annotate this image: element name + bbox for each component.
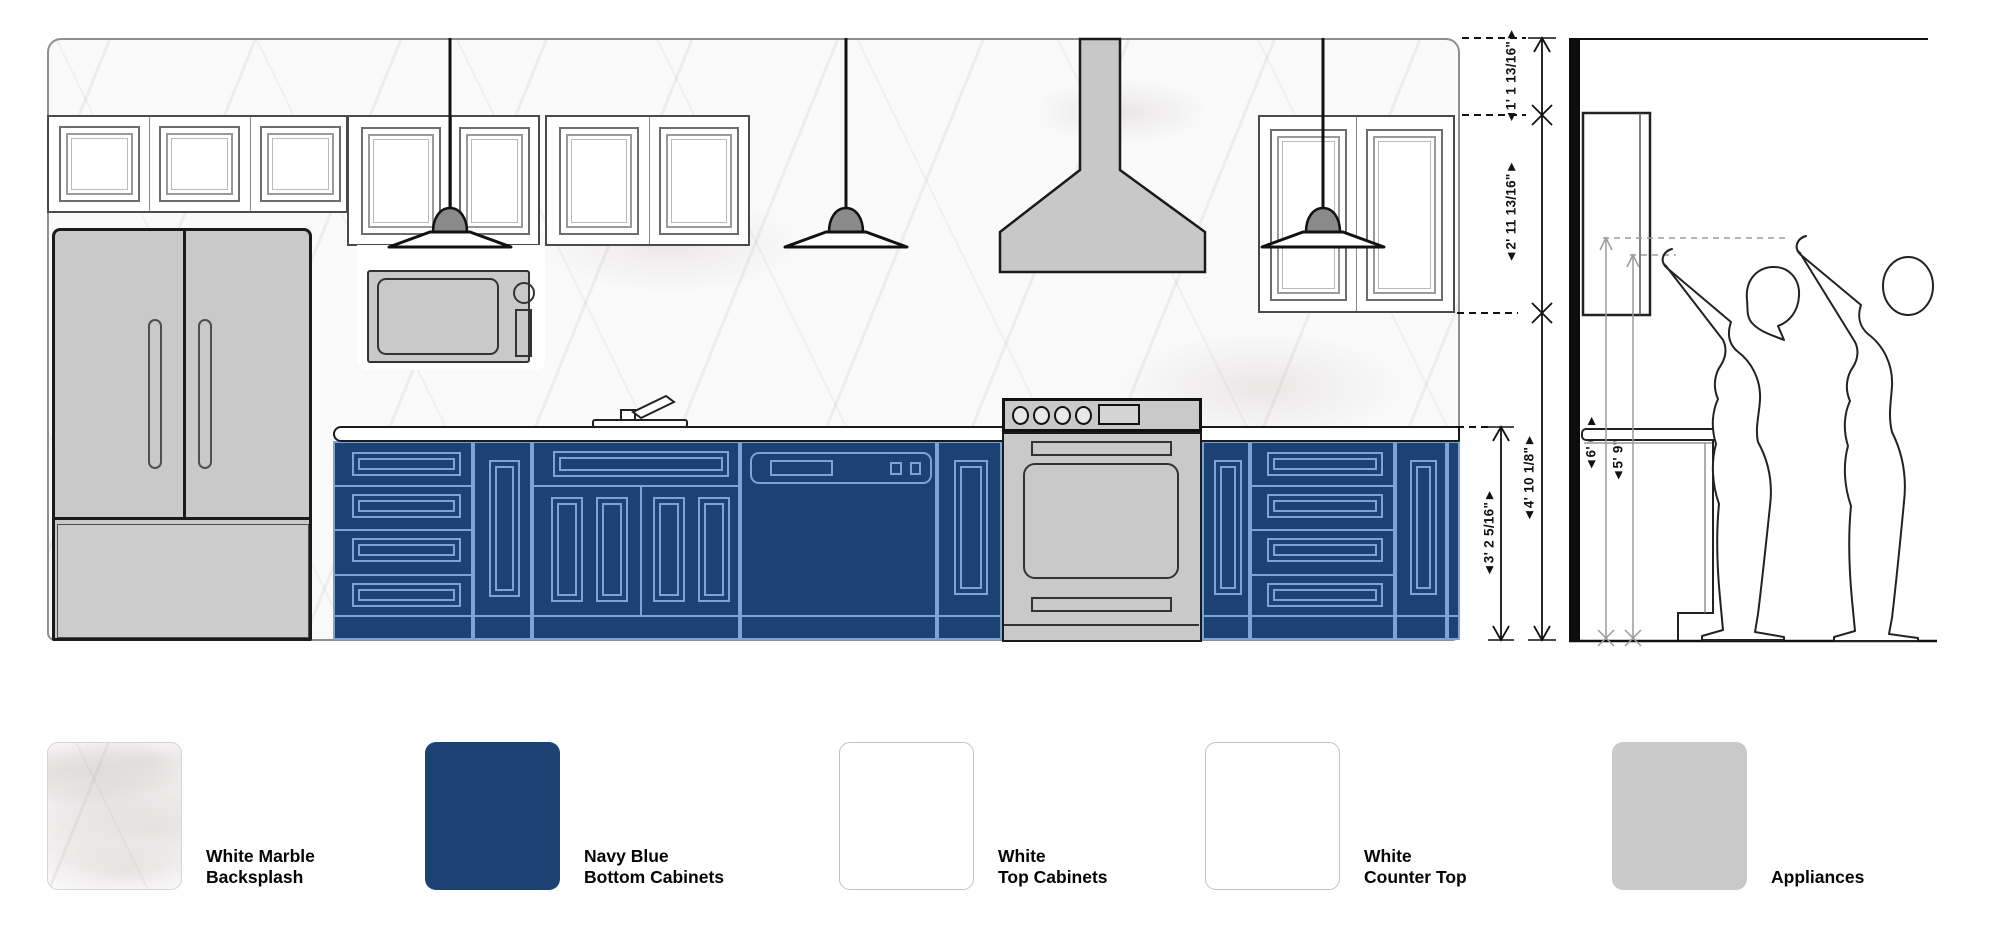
- side-base-cabinet: [1582, 429, 1719, 640]
- pendant-light: [389, 38, 511, 247]
- side-wall-cabinet: [1583, 113, 1650, 315]
- side-wall: [1569, 38, 1580, 641]
- dimension-lines-elevation: [1457, 38, 1556, 640]
- diagram-overlay: [0, 0, 1990, 936]
- side-view: [1569, 38, 1937, 646]
- man-figure: [1797, 236, 1933, 641]
- pendant-light: [785, 38, 907, 247]
- faucet: [593, 396, 687, 427]
- range-hood: [1000, 39, 1205, 272]
- woman-figure: [1663, 249, 1799, 640]
- pendant-light: [1262, 38, 1384, 247]
